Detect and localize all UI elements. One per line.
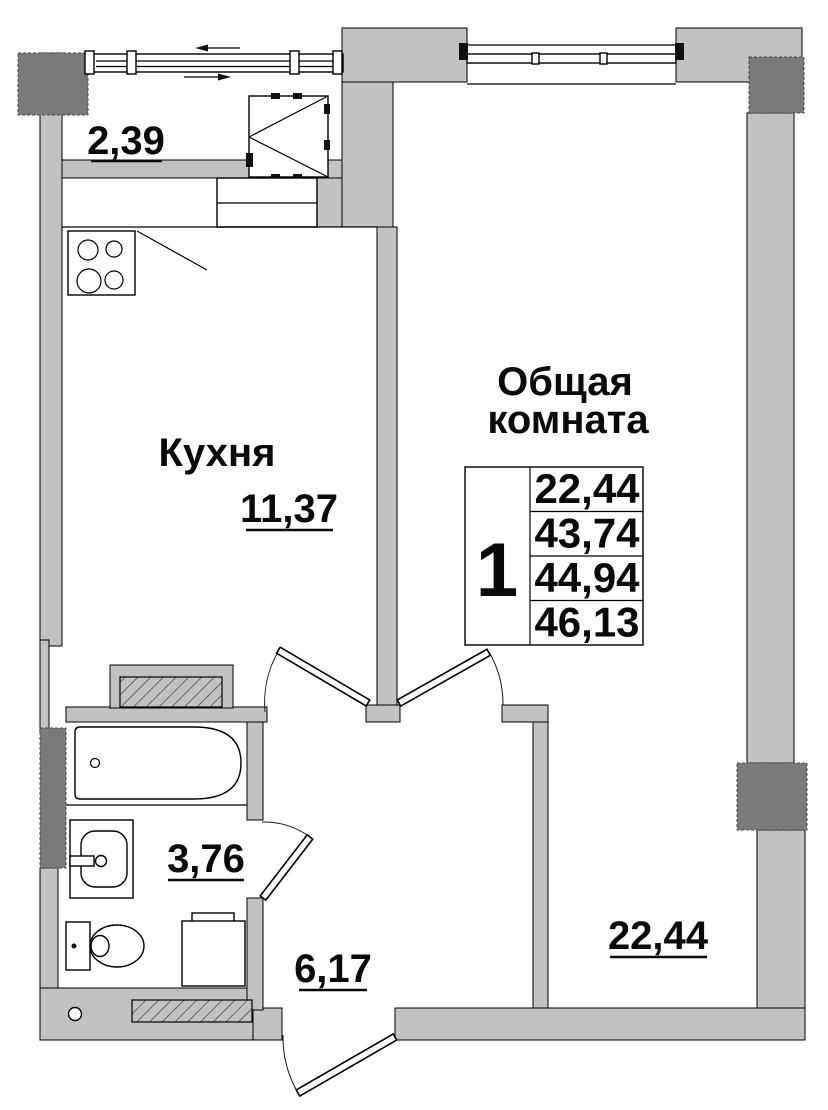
bathtub [66,727,247,805]
faucet-arm [70,856,94,866]
slide-arrow-left-head [195,45,208,52]
column-top-left [18,53,88,115]
balcony-casement-window-symbol [246,93,330,180]
wall-left-thin [40,640,49,732]
entrance-door-leaf [296,1034,396,1096]
table-area-value: 22,44 [534,465,640,512]
wall-bathroom-top [66,707,267,722]
living-room-door-leaf [397,649,490,706]
faucet-head [96,856,107,867]
entrance-door [283,1034,397,1096]
bathroom-door [260,822,313,900]
window-post [127,51,136,74]
entrance-door-swing-arc [283,1035,298,1093]
window-frame [88,54,343,72]
wall-parapet-junction [317,178,342,227]
bathroom-door-swing-arc [262,822,310,837]
window-end-post [459,43,468,60]
window-post [333,51,342,74]
floor-plan-page: 2,39 Кухня 11,37 Общ [0,0,828,1110]
balcony-area-label: 2,39 [87,119,165,163]
balcony-door-swing-line [137,231,207,270]
window-post [85,51,94,74]
table-area-value: 46,13 [534,599,639,646]
living-room-door-swing-arc [489,652,503,705]
window-end-post [675,43,684,60]
stove [68,231,135,295]
vent-shaft-bottom-wall [132,1000,252,1022]
kitchen-door-swing-arc [265,650,279,712]
wall-hall-header [502,705,548,722]
washing-machine-body [182,921,245,986]
table-rooms-count: 1 [476,528,518,613]
balcony-sliding-window [85,45,343,81]
hinge-tick [293,93,302,99]
bathroom-door-leaf [260,835,313,900]
kitchen: Кухня 11,37 [62,178,377,531]
kitchen-door-leaf [277,647,370,706]
floor-plan-drawing: 2,39 Кухня 11,37 Общ [0,0,828,1110]
wall-bathroom-right-upper [247,722,263,820]
column-top-right [749,57,804,113]
washing-machine [182,913,245,986]
balcony-door-block [217,178,317,227]
living-room: Общая комната 1 22,44 43,74 44,94 46,13 … [459,43,709,958]
toilet-tank [66,922,90,970]
slide-arrow-right-head [218,74,231,81]
kitchen-name-label: Кухня [159,431,276,475]
wall-bottom-right [395,1008,805,1040]
bathroom-area-label: 3,76 [167,837,245,881]
living-room-door [397,649,503,706]
window-glass-band [467,54,676,63]
vent-shaft-bathroom [120,677,222,707]
kitchen-area-label: 11,37 [240,487,338,531]
window-mullion [600,53,607,64]
living-room-area-label: 22,44 [608,914,709,958]
window-mullion [532,53,539,64]
kitchen-door [265,647,370,712]
wall-divider-foot [366,705,400,722]
wall-left-upper [40,53,62,646]
bathroom: 3,76 [66,727,247,986]
wall-right-lower [757,830,805,1008]
column-right-middle [737,763,807,830]
hinge-tick [324,140,330,150]
hinge-tick [246,153,253,167]
toilet-bowl-inner [91,936,109,957]
hinge-tick [271,93,280,99]
wall-divider-wide [342,82,393,227]
living-room-title-line2: комната [487,398,649,442]
hallway: 6,17 [294,947,372,991]
apartment-info-table: 1 22,44 43,74 44,94 46,13 [465,465,643,646]
wall-top-left-header [342,28,467,82]
window-post [290,51,299,74]
wall-bathroom-right-lower [247,898,263,1010]
riser-pipe [69,1008,82,1021]
table-area-value: 44,94 [534,554,640,601]
wall-kitchen-living-divider [377,227,397,705]
toilet-flush-button [72,944,77,949]
sink [70,820,133,898]
wall-bottom-middle [253,1008,282,1040]
hinge-tick [324,104,330,114]
table-area-value: 43,74 [534,510,640,557]
wall-hall-living [533,722,548,1008]
living-room-window [459,43,684,84]
casement-frame [249,96,328,177]
toilet [66,922,144,970]
hallway-area-label: 6,17 [294,947,372,991]
column-left-middle [40,728,66,868]
walls [40,28,805,1040]
wall-right-upper [747,113,794,763]
